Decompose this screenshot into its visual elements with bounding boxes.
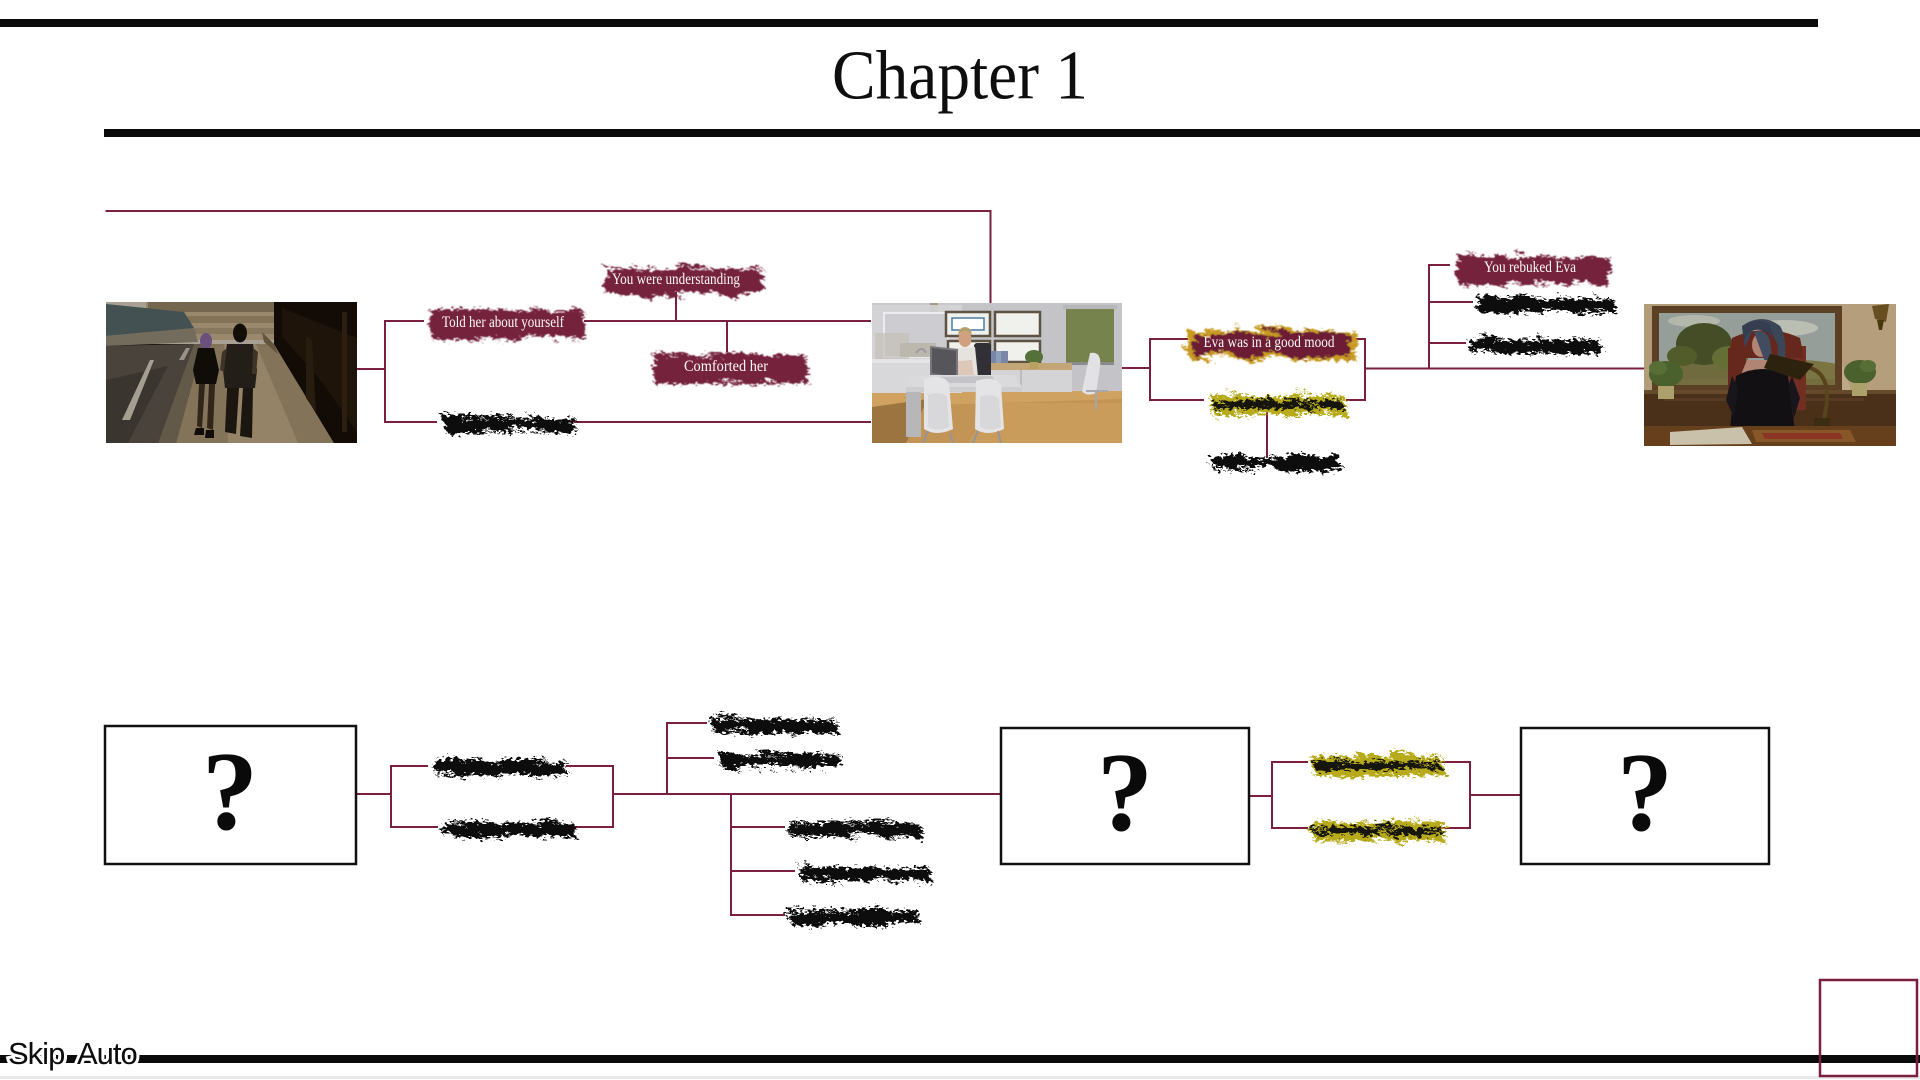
svg-text:Auto: Auto [77,1036,137,1071]
svg-text:You rebuked Eva: You rebuked Eva [1484,259,1576,276]
svg-text:Skip: Skip [8,1036,64,1071]
svg-text:Told her about yourself: Told her about yourself [442,314,565,331]
svg-text:You were understanding: You were understanding [612,271,740,288]
svg-text:?: ? [202,730,258,854]
svg-text:?: ? [1097,731,1153,855]
svg-text:Chapter 1: Chapter 1 [832,38,1088,115]
svg-text:?: ? [1617,731,1673,855]
svg-text:Comforted her: Comforted her [684,358,769,375]
svg-text:Eva was in a good mood: Eva was in a good mood [1204,334,1335,351]
